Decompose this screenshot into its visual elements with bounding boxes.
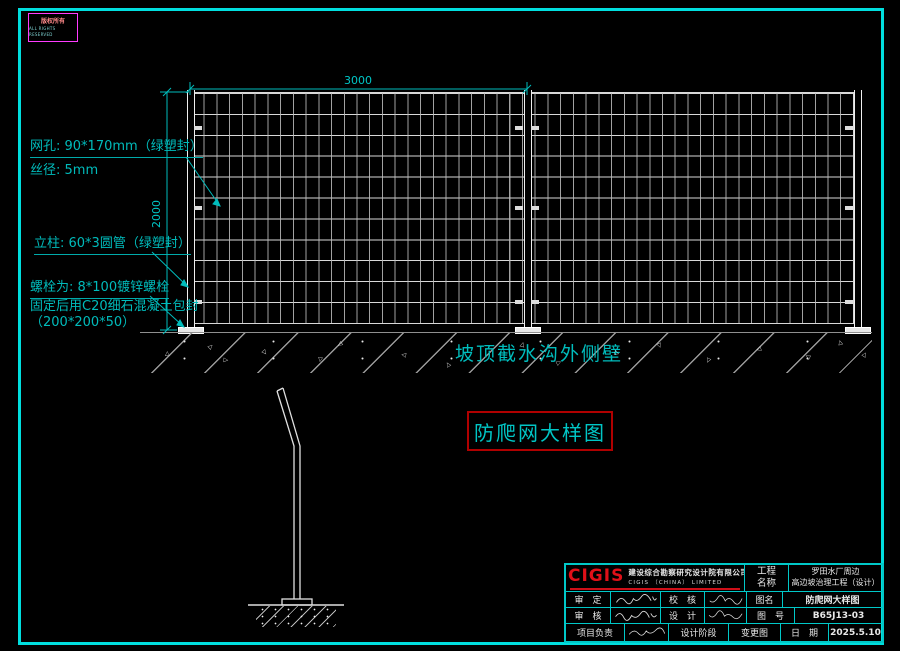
copyright-text-cn: 版权所有 [41, 18, 65, 26]
note-mesh-size: 网孔: 90*170mm（绿塑封） [30, 140, 203, 158]
drawing-number-value: B65J13-03 [794, 608, 882, 623]
title-block-header-row: CIGIS 建设综合勘察研究设计院有限公司 CIGIS （CHINA） LIMI… [566, 565, 882, 591]
copyright-stamp: 版权所有 ALL RIGHTS RESERVED [28, 13, 78, 42]
mesh-clamp [515, 126, 523, 130]
logo-underline-bar [570, 588, 741, 590]
mesh-clamp [845, 300, 853, 304]
drawing-title: 防爬网大样图 [474, 417, 606, 446]
label-project-lead: 项目负责 [566, 624, 624, 641]
label-approved: 审 定 [566, 592, 610, 607]
mesh-clamp [531, 206, 539, 210]
copyright-text-en: ALL RIGHTS RESERVED [29, 26, 77, 37]
signature-designed [704, 608, 746, 623]
signature-mark [629, 628, 664, 635]
signature-mark [615, 611, 655, 620]
design-stage-value: 变更图 [728, 624, 780, 641]
title-block: CIGIS 建设综合勘察研究设计院有限公司 CIGIS （CHINA） LIMI… [564, 563, 884, 643]
debris-triangle-icon: △ [837, 340, 843, 347]
signature-mark [710, 596, 742, 605]
label-drawing-name: 图名 [746, 592, 782, 607]
company-logo-cell: CIGIS 建设综合勘察研究设计院有限公司 CIGIS （CHINA） LIMI… [566, 565, 744, 591]
signature-mark [709, 611, 742, 619]
mesh-clamp [515, 300, 523, 304]
debris-triangle-icon: △ [401, 352, 408, 358]
note-post-spec: 立柱: 60*3圆管（绿塑封） [34, 237, 191, 255]
fence-post-right [854, 90, 862, 331]
cad-drawing-sheet: 版权所有 ALL RIGHTS RESERVED 坡顶截水沟外侧壁 网孔: 90… [0, 0, 900, 651]
signature-checked [704, 592, 746, 607]
mesh-clamp [194, 206, 202, 210]
signature-mark [616, 594, 656, 603]
mesh-clamp [515, 206, 523, 210]
debris-triangle-icon: △ [222, 357, 228, 362]
mesh-clamp [845, 206, 853, 210]
mesh-clamp [531, 126, 539, 130]
label-date: 日 期 [780, 624, 828, 641]
debris-triangle-icon: △ [318, 356, 323, 363]
project-name-value: 罗田水厂周边 高边坡治理工程（设计） [788, 565, 882, 591]
note-concrete-size: （200*200*50） [30, 316, 135, 331]
drawing-title-box: 防爬网大样图 [467, 411, 613, 451]
note-concrete-seal: 固定后用C20细石混凝土包封 [30, 300, 199, 315]
title-block-row-1: 审 定 校 核 图名 防爬网大样图 [566, 591, 882, 607]
cigis-logo: CIGIS [568, 568, 624, 585]
date-value: 2025.5.10 [828, 624, 882, 641]
mesh-clamp [194, 126, 202, 130]
debris-triangle-icon: △ [165, 351, 170, 357]
pole-footing-hatch [256, 606, 336, 627]
debris-triangle-icon: △ [613, 350, 620, 356]
signature-reviewed [610, 608, 660, 623]
title-block-row-2: 审 核 设 计 图 号 B65J13-03 [566, 607, 882, 623]
title-block-row-3: 项目负责 设计阶段 变更图 日 期 2025.5.10 [566, 623, 882, 641]
label-checked: 校 核 [660, 592, 704, 607]
label-design-stage: 设计阶段 [668, 624, 728, 641]
label-drawing-number: 图 号 [746, 608, 794, 623]
drawing-name-value: 防爬网大样图 [782, 592, 882, 607]
note-wire-diameter: 丝径: 5mm [30, 164, 98, 179]
ground-label: 坡顶截水沟外侧壁 [455, 339, 623, 366]
mesh-clamp [531, 300, 539, 304]
company-name-cn: 建设综合勘察研究设计院有限公司 [628, 567, 744, 578]
signature-project-lead [624, 624, 668, 641]
note-bolt-spec: 螺栓为: 8*100镀锌螺栓 [30, 281, 169, 299]
project-name-label: 工程 名称 [744, 565, 788, 591]
label-designed: 设 计 [660, 608, 704, 623]
signature-approved [610, 592, 660, 607]
mesh-clamp [845, 126, 853, 130]
company-name-en: CIGIS （CHINA） LIMITED [628, 578, 744, 586]
label-reviewed: 审 核 [566, 608, 610, 623]
